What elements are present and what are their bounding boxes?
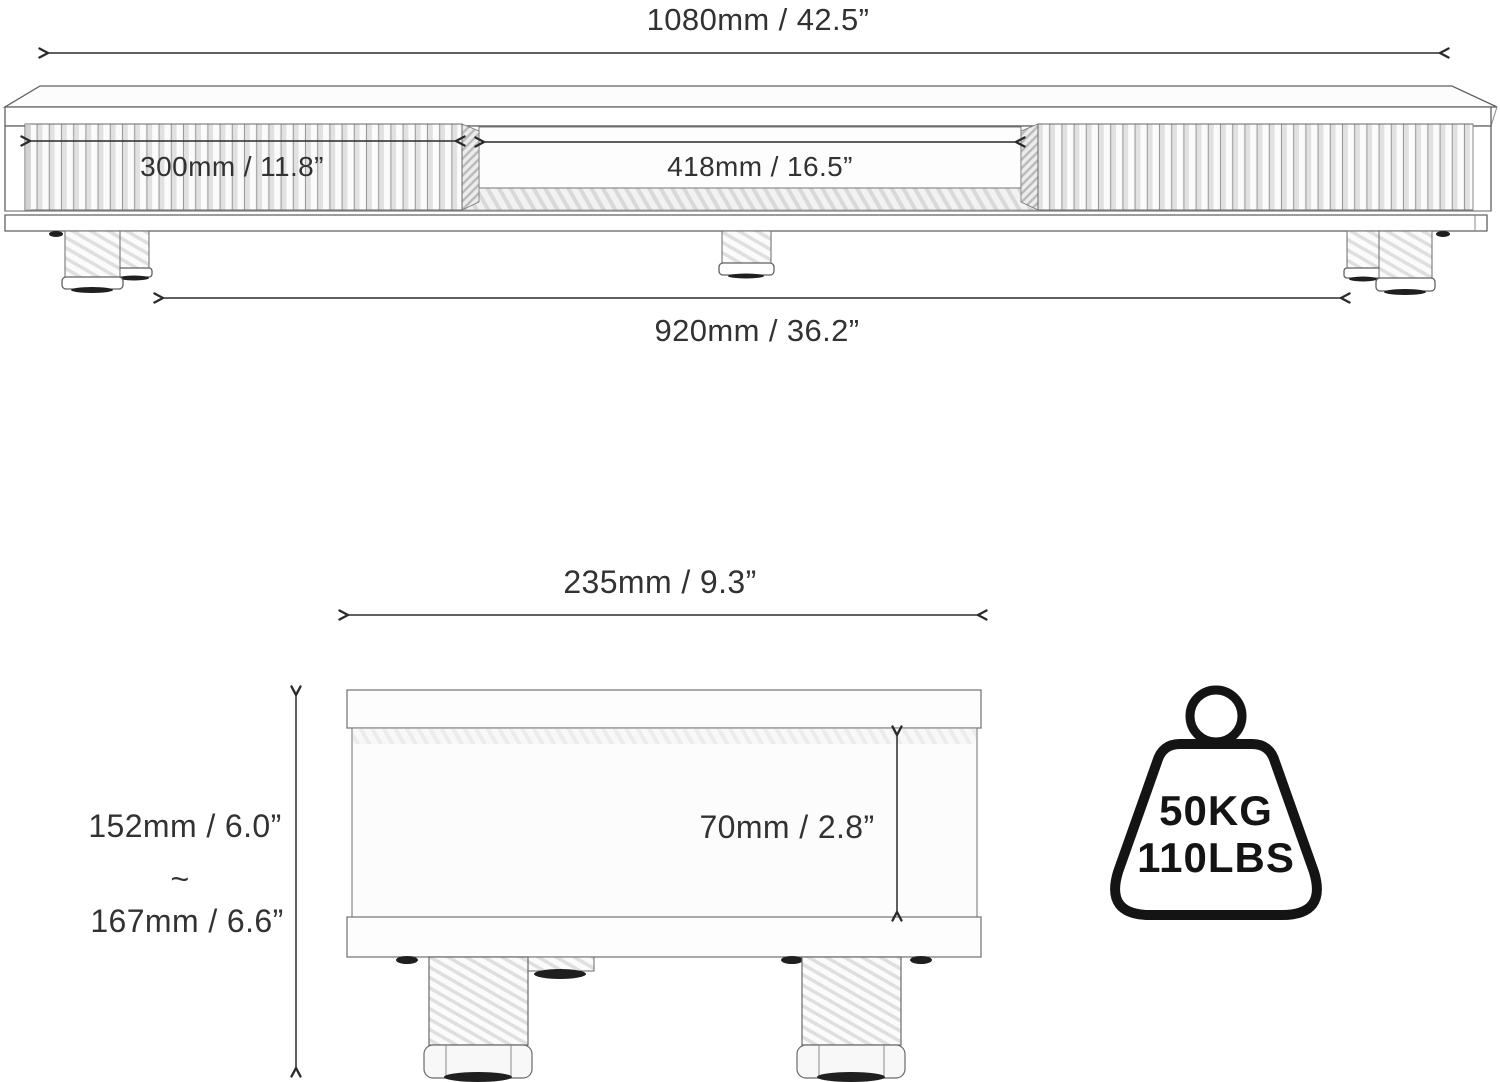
- weight-capacity-icon: 50KG 110LBS: [1115, 690, 1317, 915]
- side-leg-back-base: [534, 969, 586, 979]
- side-leg-pad: [396, 956, 418, 964]
- shelf-right-wall: [1021, 124, 1038, 210]
- front-legs: [49, 231, 1450, 295]
- opening-width-label: 418mm / 16.5”: [667, 151, 853, 182]
- weight-icon-handle: [1190, 690, 1242, 742]
- side-leg-pad: [781, 956, 803, 964]
- side-top-board: [347, 690, 981, 728]
- side-middle-panel: [352, 728, 977, 917]
- front-top-surface: [5, 86, 1497, 107]
- dimension-height-range: 152mm / 6.0” ~ 167mm / 6.6”: [88, 695, 296, 1068]
- weight-lbs-label: 110LBS: [1137, 834, 1295, 881]
- leg-pad: [49, 231, 63, 237]
- left-drawer-shadow-edge: [25, 124, 31, 210]
- leg-right-front: [1379, 231, 1432, 278]
- side-middle-hatch: [353, 729, 976, 744]
- front-top-board: [5, 107, 1491, 126]
- side-legs: [396, 956, 932, 1082]
- side-leg-left-base: [444, 1072, 512, 1082]
- front-top-right-edge: [1491, 107, 1497, 126]
- leg-right-back-base: [1349, 277, 1377, 282]
- leg-pad: [1436, 231, 1450, 237]
- leg-right-back: [1347, 231, 1379, 268]
- front-plinth: [5, 215, 1487, 231]
- tv-stand-front-view: 1080mm / 42.5” 300mm / 11.8” 418mm / 16.…: [5, 2, 1497, 348]
- side-leg-right-base: [817, 1072, 885, 1082]
- right-drawer-front: [1038, 124, 1473, 210]
- dimension-depth: 235mm / 9.3”: [348, 564, 978, 615]
- leg-left-back-base: [119, 276, 149, 281]
- depth-label: 235mm / 9.3”: [563, 564, 756, 600]
- weight-kg-label: 50KG: [1159, 787, 1273, 834]
- overall-width-label: 1080mm / 42.5”: [647, 2, 870, 37]
- leg-middle-base: [728, 274, 764, 279]
- side-leg-back: [528, 957, 594, 971]
- height-range-separator: ~: [170, 861, 189, 897]
- leg-right-front-base: [1384, 289, 1426, 295]
- drawer-width-label: 300mm / 11.8”: [140, 151, 324, 182]
- side-leg-right: [802, 957, 901, 1045]
- leg-span-label: 920mm / 36.2”: [654, 313, 859, 348]
- dimension-leg-span: 920mm / 36.2”: [163, 298, 1341, 348]
- leg-left-front: [65, 231, 120, 277]
- side-leg-pad: [910, 956, 932, 964]
- dimension-overall-width: 1080mm / 42.5”: [48, 2, 1440, 53]
- side-leg-left: [429, 957, 528, 1045]
- leg-middle: [722, 231, 771, 263]
- leg-left-back: [119, 231, 149, 268]
- tv-stand-side-view: 235mm / 9.3” 1: [88, 564, 981, 1082]
- min-height-label: 152mm / 6.0”: [88, 808, 281, 844]
- shelf-floor-hatch: [462, 187, 1038, 210]
- leg-middle-cap: [719, 263, 774, 275]
- inner-height-label: 70mm / 2.8”: [699, 809, 874, 845]
- max-height-label: 167mm / 6.6”: [90, 903, 283, 939]
- side-bottom-board: [347, 917, 981, 957]
- leg-left-front-base: [71, 287, 113, 293]
- shelf-left-wall: [462, 124, 479, 210]
- dimension-diagram: 1080mm / 42.5” 300mm / 11.8” 418mm / 16.…: [0, 0, 1500, 1082]
